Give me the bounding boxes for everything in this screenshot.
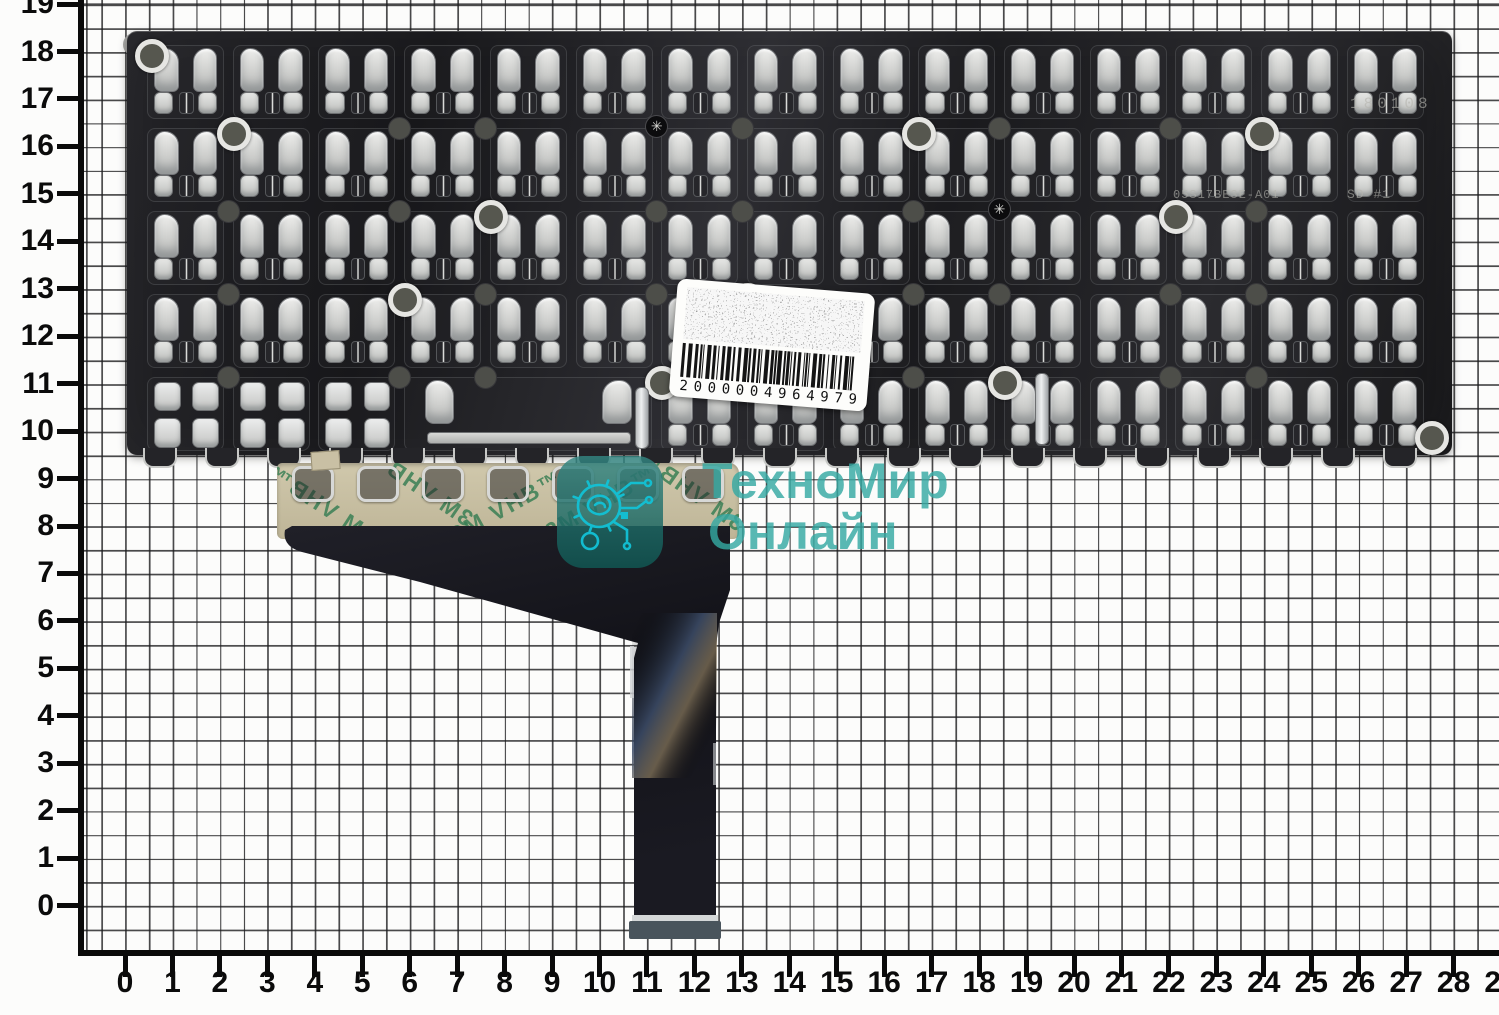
key-pad-right <box>883 424 902 447</box>
plate-hole <box>388 366 411 389</box>
key-cutout <box>147 128 224 202</box>
y-tick <box>57 476 80 481</box>
key-wing-right <box>707 48 732 92</box>
y-tick <box>57 429 80 434</box>
key-cutout <box>1090 45 1167 119</box>
key-wing-right <box>1050 380 1075 424</box>
key-cutout <box>1004 45 1081 119</box>
key-cutout <box>918 45 995 119</box>
key-wing-right <box>1307 131 1332 175</box>
y-axis-label: 17 <box>6 82 54 116</box>
key-wing-left <box>1354 297 1379 341</box>
key-pad-left <box>1097 424 1116 447</box>
gear-tooth <box>590 526 592 532</box>
key-pad-left <box>1097 92 1116 115</box>
key-pad-left <box>154 175 173 198</box>
key-wing-left <box>411 131 436 175</box>
key-pad-right <box>1226 341 1245 364</box>
key-cutout <box>1004 294 1081 368</box>
key-slit <box>1293 175 1308 198</box>
key-wing-right <box>535 48 560 92</box>
key-wing-left <box>1182 297 1207 341</box>
key-slit <box>950 92 965 115</box>
key-pad-left <box>1182 92 1201 115</box>
key-wing-right <box>1135 131 1160 175</box>
key-wing-right <box>621 297 646 341</box>
x-axis-label: 22 <box>1147 966 1191 1000</box>
key-cutout <box>147 294 224 368</box>
key-wing-right <box>535 214 560 258</box>
key-pad-left <box>240 341 259 364</box>
key-slit <box>1293 424 1308 447</box>
key-wing-right <box>193 131 218 175</box>
key-wing-left <box>668 48 693 92</box>
key-pad-right <box>369 341 388 364</box>
spacebar-wing-left <box>425 380 454 424</box>
y-tick <box>57 2 80 7</box>
plate-hole <box>1245 283 1268 306</box>
x-axis-label: 15 <box>815 966 859 1000</box>
screw-hole-ring <box>1245 117 1279 151</box>
key-wing-left <box>925 214 950 258</box>
key-pad-right <box>1312 424 1331 447</box>
key-pad-left <box>154 258 173 281</box>
gear-tooth <box>618 495 623 498</box>
key-wing-right <box>278 48 303 92</box>
key-slit <box>1122 341 1137 364</box>
key-pad-left <box>840 424 859 447</box>
key-pad-left <box>411 92 430 115</box>
key-wing-right <box>792 48 817 92</box>
y-tick <box>57 903 80 908</box>
key-pad-right <box>1398 175 1417 198</box>
y-tick <box>57 524 80 529</box>
strip-tab-outline <box>292 466 334 502</box>
barcode-digit: 0 <box>735 382 745 399</box>
key-cutout <box>490 45 567 119</box>
key-pad-left <box>240 175 259 198</box>
key-pad-right <box>1398 258 1417 281</box>
key-pad-right <box>1055 258 1074 281</box>
plate-bottom-tab <box>143 448 177 468</box>
y-axis-label: 1 <box>6 841 54 875</box>
key-wing-right <box>1221 297 1246 341</box>
key-pad-left <box>668 258 687 281</box>
y-axis-label: 11 <box>6 367 54 401</box>
key-wing-left <box>1268 297 1293 341</box>
key-pad-right <box>541 341 560 364</box>
key-wing-left <box>1182 380 1207 424</box>
key-pad-right <box>1140 424 1159 447</box>
key-wing-right <box>964 297 989 341</box>
key-slit <box>1293 341 1308 364</box>
plate-hole <box>474 283 497 306</box>
key-wing-left <box>1268 380 1293 424</box>
key-slit <box>179 341 194 364</box>
key-wing-left <box>1182 131 1207 175</box>
x-axis-label: 20 <box>1052 966 1096 1000</box>
key-pad-right <box>1398 341 1417 364</box>
key-pad-right <box>626 258 645 281</box>
plate-hole <box>388 117 411 140</box>
x-axis-label: 1 <box>150 966 194 1000</box>
key-cutout <box>1261 377 1338 451</box>
key-pad-right <box>883 175 902 198</box>
y-tick <box>57 618 80 623</box>
key-wing-right <box>450 297 475 341</box>
screw-hole-ring <box>1415 421 1449 455</box>
barcode-digit: 4 <box>806 388 816 405</box>
key-pad-right <box>1055 341 1074 364</box>
key-wing-left <box>325 131 350 175</box>
key-cutout <box>1175 45 1252 119</box>
gear-tooth <box>608 525 611 530</box>
key-pad-left <box>754 175 773 198</box>
key-pad-left <box>840 258 859 281</box>
key-slit <box>179 92 194 115</box>
key-cutout <box>661 128 738 202</box>
y-tick <box>57 144 80 149</box>
key-wing-left <box>497 297 522 341</box>
key-wing-right <box>792 214 817 258</box>
key-wing-left <box>1268 214 1293 258</box>
x-axis-label: 24 <box>1242 966 1286 1000</box>
plate-hole <box>217 366 240 389</box>
x-axis-label: 13 <box>720 966 764 1000</box>
key-wing-left <box>583 297 608 341</box>
key-pad-right <box>626 92 645 115</box>
technomir-watermark-text: ТехноМир Онлайн <box>702 456 949 558</box>
key-pad-right <box>1226 424 1245 447</box>
key-pad-left <box>1011 341 1030 364</box>
arrow-key-pad <box>154 418 181 447</box>
key-wing-right <box>450 214 475 258</box>
key-slit <box>865 424 880 447</box>
key-wing-right <box>1392 380 1417 424</box>
x-axis-label: 27 <box>1384 966 1428 1000</box>
x-axis-label: 9 <box>530 966 574 1000</box>
arrow-key-pad <box>240 382 267 411</box>
key-pad-right <box>883 92 902 115</box>
key-wing-right <box>1392 48 1417 92</box>
y-tick <box>57 856 80 861</box>
key-slit <box>351 92 366 115</box>
plate-hole <box>217 200 240 223</box>
key-pad-left <box>240 92 259 115</box>
key-wing-left <box>1011 48 1036 92</box>
barcode-digit: 7 <box>834 390 844 407</box>
key-pad-left <box>1354 341 1373 364</box>
key-wing-right <box>364 48 389 92</box>
key-slit <box>351 175 366 198</box>
key-wing-left <box>1011 297 1036 341</box>
key-pad-right <box>541 175 560 198</box>
gear-circuit-icon <box>574 480 652 549</box>
key-pad-right <box>198 175 217 198</box>
key-slit <box>1208 424 1223 447</box>
x-axis-label: 6 <box>388 966 432 1000</box>
key-slit <box>1122 175 1137 198</box>
plate-hole <box>1245 200 1268 223</box>
key-wing-left <box>583 131 608 175</box>
plate-bottom-tab <box>1259 448 1293 468</box>
key-wing-right <box>1221 131 1246 175</box>
x-axis-label: 26 <box>1337 966 1381 1000</box>
key-pad-left <box>1182 424 1201 447</box>
key-cutout <box>147 377 224 451</box>
y-axis-label: 15 <box>6 177 54 211</box>
key-wing-right <box>1135 297 1160 341</box>
y-axis-label: 0 <box>6 889 54 923</box>
screw-hole-ring <box>474 200 508 234</box>
y-axis-label: 18 <box>6 35 54 69</box>
key-pad-right <box>883 258 902 281</box>
y-axis-label: 9 <box>6 462 54 496</box>
key-slit <box>1379 341 1394 364</box>
key-pad-left <box>497 175 516 198</box>
key-slit <box>351 341 366 364</box>
x-axis-label: 17 <box>910 966 954 1000</box>
arrow-key-pad <box>278 382 305 411</box>
key-cutout <box>918 377 995 451</box>
key-slit <box>693 424 708 447</box>
key-pad-right <box>798 92 817 115</box>
key-pad-right <box>1140 92 1159 115</box>
key-wing-right <box>1050 297 1075 341</box>
product-photo-stage: 0123456789101112131415161718192021222324… <box>0 0 1499 1015</box>
x-axis-label: 23 <box>1194 966 1238 1000</box>
key-pad-right <box>1312 175 1331 198</box>
key-pad-left <box>154 341 173 364</box>
key-pad-left <box>325 92 344 115</box>
key-pad-left <box>154 92 173 115</box>
key-wing-right <box>364 131 389 175</box>
barcode-bar <box>686 343 693 377</box>
key-pad-left <box>325 258 344 281</box>
key-pad-left <box>497 341 516 364</box>
key-pad-right <box>1140 341 1159 364</box>
arrow-key-pad <box>364 382 391 411</box>
x-axis-label: 5 <box>340 966 384 1000</box>
key-slit <box>779 92 794 115</box>
key-cutout <box>1175 294 1252 368</box>
key-wing-left <box>1354 131 1379 175</box>
key-slit <box>179 258 194 281</box>
key-pad-right <box>798 258 817 281</box>
key-slit <box>179 175 194 198</box>
cable-edge-glint <box>630 646 634 698</box>
key-cutout <box>490 128 567 202</box>
x-axis-label: 19 <box>1005 966 1049 1000</box>
watermark-line2: Онлайн <box>708 507 949 558</box>
y-tick <box>57 666 80 671</box>
key-cutout <box>1261 45 1338 119</box>
key-wing-right <box>364 214 389 258</box>
key-slit <box>865 258 880 281</box>
key-pad-left <box>668 175 687 198</box>
plate-stamp-text: 05S17BE3E-A01 <box>1173 188 1280 202</box>
barcode-bar <box>826 355 830 389</box>
x-axis-label: 12 <box>672 966 716 1000</box>
key-wing-left <box>240 48 265 92</box>
key-slit <box>1379 424 1394 447</box>
y-axis-label: 10 <box>6 414 54 448</box>
key-pad-left <box>325 175 344 198</box>
screw-hole-ring <box>217 117 251 151</box>
key-wing-right <box>964 380 989 424</box>
key-slit <box>436 175 451 198</box>
strip-tab-outline <box>422 466 464 502</box>
key-wing-left <box>154 297 179 341</box>
key-slit <box>265 341 280 364</box>
key-slit <box>1379 258 1394 281</box>
y-axis-label: 16 <box>6 129 54 163</box>
key-cutout <box>1175 377 1252 451</box>
key-wing-left <box>1354 380 1379 424</box>
key-pad-left <box>497 92 516 115</box>
key-cutout <box>833 45 910 119</box>
star-screw: ✳ <box>988 198 1011 221</box>
key-wing-right <box>878 297 903 341</box>
key-pad-right <box>1312 258 1331 281</box>
key-cutout <box>1090 294 1167 368</box>
cable-anchor-bracket <box>1035 373 1049 445</box>
adhesive-tab <box>310 450 340 471</box>
key-cutout <box>404 128 481 202</box>
key-wing-right <box>193 297 218 341</box>
arrow-key-pad <box>325 418 352 447</box>
key-slit <box>950 341 965 364</box>
key-cutout <box>233 294 310 368</box>
y-axis-label: 14 <box>6 224 54 258</box>
barcode-bar <box>680 343 686 377</box>
key-pad-right <box>1226 92 1245 115</box>
key-slit <box>1036 341 1051 364</box>
strip-tab-outline <box>487 466 529 502</box>
key-cutout <box>747 45 824 119</box>
plate-bottom-tab <box>205 448 239 468</box>
y-tick <box>57 381 80 386</box>
barcode-digit: 0 <box>721 381 731 398</box>
watermark-line1: ТехноМир <box>702 456 949 507</box>
key-cutout <box>404 45 481 119</box>
key-pad-left <box>583 341 602 364</box>
key-wing-left <box>411 214 436 258</box>
key-pad-left <box>411 175 430 198</box>
key-pad-right <box>1055 92 1074 115</box>
key-pad-right <box>455 258 474 281</box>
y-tick <box>57 49 80 54</box>
x-axis-label: 11 <box>625 966 669 1000</box>
key-pad-right <box>541 92 560 115</box>
key-pad-left <box>925 92 944 115</box>
key-pad-left <box>1354 258 1373 281</box>
arrow-key-pad <box>364 418 391 447</box>
key-wing-right <box>1135 48 1160 92</box>
key-slit <box>265 175 280 198</box>
x-axis-label: 2 <box>198 966 242 1000</box>
key-wing-right <box>450 131 475 175</box>
x-axis-label: 28 <box>1432 966 1476 1000</box>
key-cutout <box>1261 294 1338 368</box>
key-pad-right <box>1140 258 1159 281</box>
key-pad-right <box>283 92 302 115</box>
key-pad-left <box>754 424 773 447</box>
y-axis-label: 2 <box>6 794 54 828</box>
key-pad-right <box>369 175 388 198</box>
key-pad-left <box>668 92 687 115</box>
key-wing-left <box>1182 48 1207 92</box>
key-cutout <box>747 211 824 285</box>
key-slit <box>1208 92 1223 115</box>
key-pad-right <box>712 175 731 198</box>
key-wing-right <box>1392 214 1417 258</box>
key-wing-left <box>583 214 608 258</box>
y-tick <box>57 239 80 244</box>
key-wing-right <box>1392 297 1417 341</box>
key-wing-left <box>325 214 350 258</box>
key-wing-left <box>840 131 865 175</box>
plate-hole <box>731 117 754 140</box>
key-cutout <box>233 377 310 451</box>
key-wing-left <box>840 48 865 92</box>
plate-stamp-text: SD #1 <box>1347 187 1391 202</box>
key-cutout <box>661 45 738 119</box>
key-pad-left <box>1011 175 1030 198</box>
barcode-digit: 0 <box>707 380 717 397</box>
gear-tooth <box>574 497 580 499</box>
key-slit <box>1036 258 1051 281</box>
y-axis-label: 12 <box>6 319 54 353</box>
key-slit <box>1122 424 1137 447</box>
key-slit <box>522 341 537 364</box>
key-wing-left <box>1097 297 1122 341</box>
key-pad-left <box>240 258 259 281</box>
key-pad-right <box>1398 424 1417 447</box>
key-cutout <box>404 211 481 285</box>
y-tick <box>57 761 80 766</box>
plate-bottom-tab <box>1135 448 1169 468</box>
plate-stamp-text: 180108 <box>1350 95 1432 113</box>
key-slit <box>436 258 451 281</box>
key-slit <box>1208 341 1223 364</box>
key-wing-left <box>754 214 779 258</box>
plate-bottom-tab <box>1383 448 1417 468</box>
x-axis-label: 18 <box>957 966 1001 1000</box>
key-pad-right <box>455 341 474 364</box>
key-slit <box>693 175 708 198</box>
plate-hole <box>988 283 1011 306</box>
key-wing-left <box>154 214 179 258</box>
arrow-key-pad <box>192 382 219 411</box>
key-cutout <box>576 211 653 285</box>
key-wing-right <box>792 131 817 175</box>
gear-tooth <box>588 482 591 487</box>
key-cutout <box>233 211 310 285</box>
key-wing-left <box>668 214 693 258</box>
arrow-key-pad <box>278 418 305 447</box>
key-pad-left <box>925 258 944 281</box>
y-tick <box>57 713 80 718</box>
plate-bottom-tab <box>1073 448 1107 468</box>
key-pad-left <box>1011 258 1030 281</box>
key-cutout <box>833 211 910 285</box>
x-axis-label: 7 <box>435 966 479 1000</box>
key-wing-right <box>1221 214 1246 258</box>
key-wing-left <box>497 48 522 92</box>
key-wing-right <box>1307 297 1332 341</box>
key-wing-right <box>878 48 903 92</box>
